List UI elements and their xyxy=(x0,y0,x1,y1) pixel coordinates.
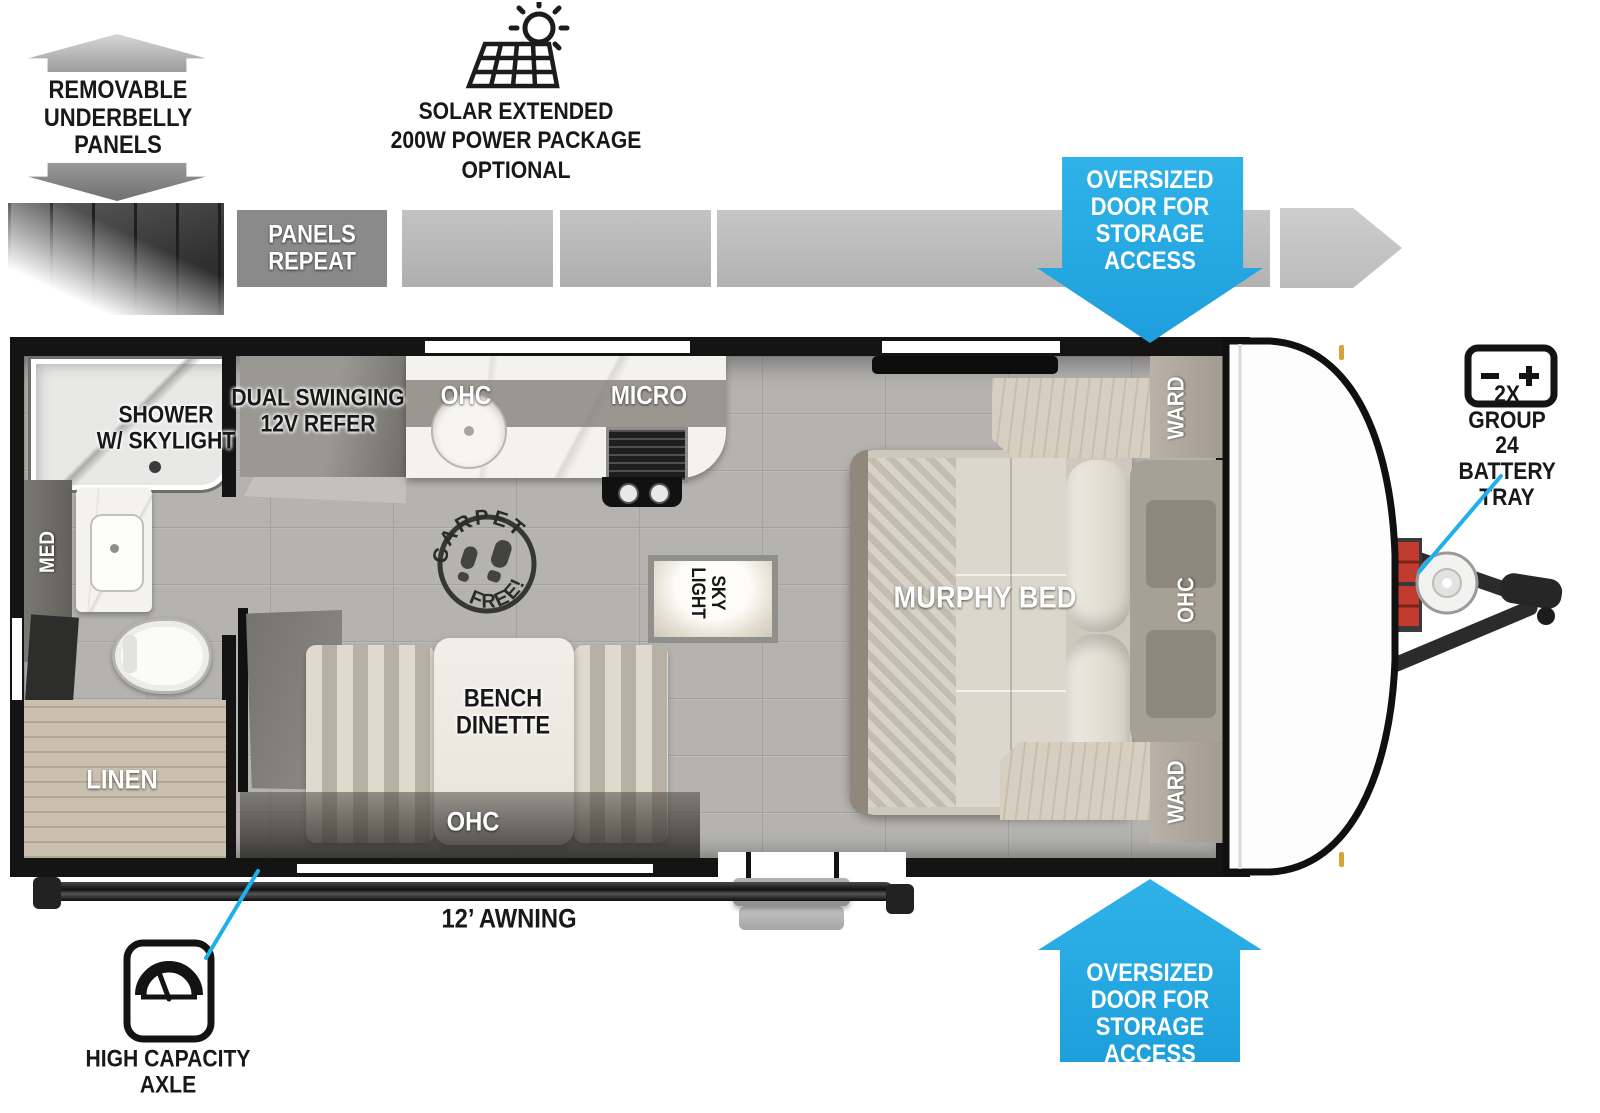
battery-label: 2X GROUP 24 BATTERY TRAY xyxy=(1458,382,1555,510)
oversized-door-top-label: OVERSIZED DOOR FOR STORAGE ACCESS xyxy=(1086,167,1213,275)
murphy-bed-label: MURPHY BED xyxy=(894,580,1077,613)
micro-label: MICRO xyxy=(611,382,687,410)
linen-label: LINEN xyxy=(86,766,157,795)
bed-ohc-label: OHC xyxy=(1173,577,1200,623)
shower-label: SHOWER W/ SKYLIGHT xyxy=(97,402,235,453)
dinette-label: BENCH DINETTE xyxy=(456,685,550,739)
dinette-ohc-label: OHC xyxy=(447,808,500,837)
skylight-label: SKY LIGHT xyxy=(687,567,727,618)
med-label: MED xyxy=(36,531,60,573)
kitchen-ohc-label: OHC xyxy=(441,382,492,410)
ward-top-label: WARD xyxy=(1163,376,1190,439)
solar-label: SOLAR EXTENDED 200W POWER PACKAGE OPTION… xyxy=(391,97,642,185)
panels-repeat-label: PANELS REPEAT xyxy=(268,221,356,275)
refer-label: DUAL SWINGING 12V REFER xyxy=(231,385,404,436)
scale-icon xyxy=(123,939,215,1043)
front-cap xyxy=(0,0,1600,1113)
ward-bottom-label: WARD xyxy=(1163,760,1190,823)
propane-tank xyxy=(1417,553,1477,613)
axle-label: HIGH CAPACITY AXLE xyxy=(85,1046,250,1097)
floorplan-diagram: REMOVABLE UNDERBELLY PANELS SOLAR EXTEND… xyxy=(0,0,1600,1113)
awning-label: 12’ AWNING xyxy=(441,905,576,934)
marker-light-icon xyxy=(1339,852,1344,867)
boot-print-icon xyxy=(455,529,514,592)
oversized-door-bottom-label: OVERSIZED DOOR FOR STORAGE ACCESS xyxy=(1086,960,1213,1068)
marker-light-icon xyxy=(1339,345,1344,360)
underbelly-label: REMOVABLE UNDERBELLY PANELS xyxy=(44,77,192,160)
